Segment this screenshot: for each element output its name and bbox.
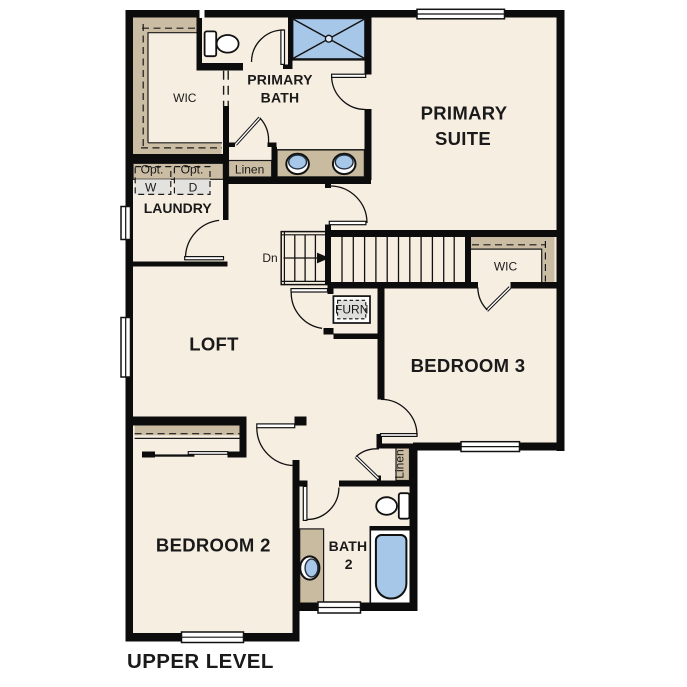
svg-text:LOFT: LOFT: [189, 334, 239, 355]
svg-text:BEDROOM 3: BEDROOM 3: [411, 355, 526, 376]
svg-text:WIC: WIC: [173, 91, 197, 105]
svg-text:W: W: [145, 180, 157, 194]
svg-text:FURN: FURN: [335, 303, 368, 317]
svg-text:D: D: [189, 180, 198, 194]
svg-text:2: 2: [345, 556, 353, 572]
svg-text:LAUNDRY: LAUNDRY: [144, 200, 213, 216]
svg-text:BEDROOM 2: BEDROOM 2: [156, 535, 271, 556]
svg-text:WIC: WIC: [494, 259, 518, 273]
svg-text:Dn: Dn: [262, 251, 277, 265]
svg-text:Opt.: Opt.: [141, 163, 164, 177]
svg-text:SUITE: SUITE: [435, 128, 491, 149]
svg-text:PRIMARY: PRIMARY: [421, 103, 508, 124]
svg-text:BATH: BATH: [329, 538, 368, 554]
svg-text:BATH: BATH: [261, 90, 300, 106]
svg-text:UPPER LEVEL: UPPER LEVEL: [127, 650, 274, 673]
svg-text:PRIMARY: PRIMARY: [247, 72, 313, 88]
svg-text:Opt.: Opt.: [181, 163, 204, 177]
svg-text:Linen: Linen: [235, 162, 264, 176]
svg-text:Linen: Linen: [393, 449, 407, 478]
